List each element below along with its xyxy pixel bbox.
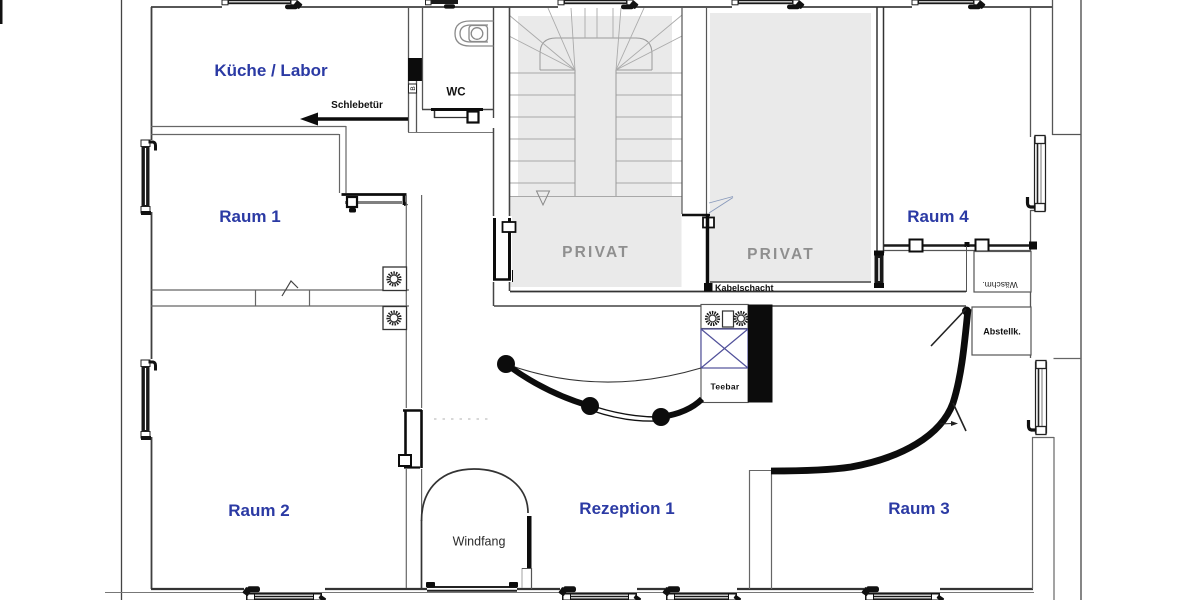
svg-text:Raum 1: Raum 1 — [219, 207, 280, 226]
svg-text:PRIVAT: PRIVAT — [562, 244, 630, 261]
svg-text:Schlebetür: Schlebetür — [331, 100, 383, 111]
svg-text:PRIVAT: PRIVAT — [747, 246, 815, 263]
svg-text:Teebar: Teebar — [710, 382, 739, 392]
svg-text:Rezeption 1: Rezeption 1 — [579, 499, 674, 518]
svg-text:Kabelschacht: Kabelschacht — [715, 283, 774, 293]
svg-text:Raum 3: Raum 3 — [888, 499, 949, 518]
svg-text:WC: WC — [446, 87, 465, 99]
svg-text:Wäschm.: Wäschm. — [982, 280, 1017, 290]
svg-text:Raum 2: Raum 2 — [228, 501, 289, 520]
svg-text:Küche / Labor: Küche / Labor — [214, 61, 328, 80]
svg-text:Raum 4: Raum 4 — [907, 207, 969, 226]
svg-text:B: B — [410, 86, 417, 90]
svg-text:Windfang: Windfang — [453, 535, 506, 549]
svg-text:Abstellk.: Abstellk. — [983, 327, 1021, 337]
